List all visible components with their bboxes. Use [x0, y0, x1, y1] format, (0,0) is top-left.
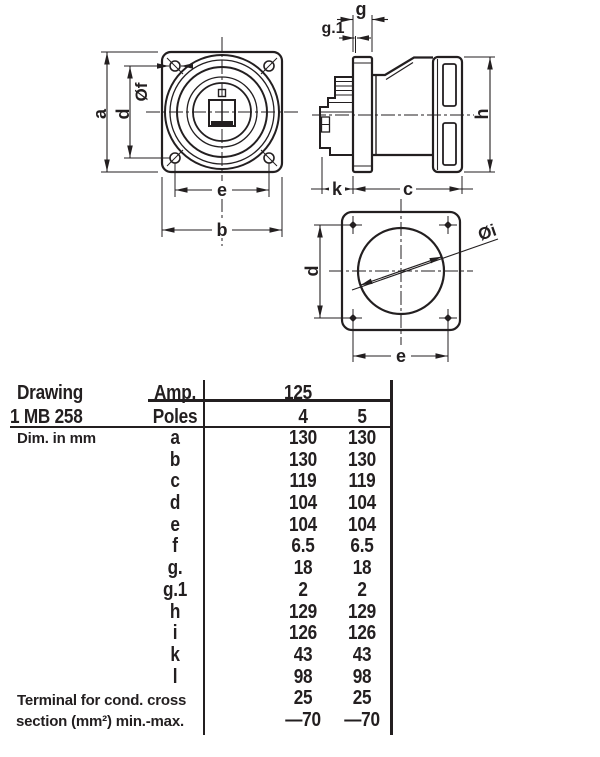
dim-note: Dim. in mm: [17, 431, 96, 447]
body-profile: [372, 58, 433, 76]
row-value: 119: [321, 470, 404, 492]
row-value: 104: [321, 492, 404, 514]
side-dim-h-label: h: [472, 109, 492, 120]
row-key: d: [148, 492, 201, 514]
row-value: 43: [321, 644, 404, 666]
row-value: 130: [321, 427, 404, 449]
row-value: 2: [321, 579, 404, 601]
poles-label: Poles: [148, 406, 201, 428]
row-key: i: [148, 622, 201, 644]
row-key: k: [148, 644, 201, 666]
drawing-number: 1 MB 258: [10, 406, 83, 428]
rear-dim-e-label: e: [396, 346, 406, 366]
drawing-label: Drawing: [17, 382, 83, 404]
row-value: 6.5: [321, 535, 404, 557]
side-view: [311, 15, 495, 194]
row-key: g.1: [148, 579, 201, 601]
datasheet-page: { "colors": {"ink": "#231f20", "backgrou…: [0, 0, 600, 757]
row-value: 129: [321, 601, 404, 623]
amp-value: 125: [217, 382, 379, 404]
rear-dim-d-label: d: [302, 266, 322, 277]
terminal-max-value: —70: [321, 709, 404, 731]
row-value: 126: [321, 622, 404, 644]
front-view: [101, 37, 298, 246]
terminal-label-line2: section (mm²) min.-max.: [16, 714, 184, 730]
row-key: a: [148, 427, 201, 449]
rear-dim-i-label: Øi: [476, 221, 499, 245]
row-key: f: [148, 535, 201, 557]
table-vertical-rule-left: [203, 380, 206, 735]
front-dim-e-label: e: [217, 180, 227, 200]
front-dim-d-label: d: [113, 109, 133, 120]
side-dim-g-label: g: [356, 0, 367, 19]
rear-view: [314, 199, 498, 362]
technical-drawing: a d Øf e b g g.1 h k c d e Øi: [0, 0, 600, 378]
side-dim-k-label: k: [332, 179, 343, 199]
side-dim-c-label: c: [403, 179, 413, 199]
front-dim-a-label: a: [90, 108, 110, 119]
row-value: 104: [321, 514, 404, 536]
row-key: b: [148, 449, 201, 471]
amp-label: Amp.: [148, 382, 201, 404]
row-key: e: [148, 514, 201, 536]
side-dim-g1-label: g.1: [321, 20, 344, 37]
row-value: 130: [321, 449, 404, 471]
row-key: l: [148, 666, 201, 688]
front-dim-b-label: b: [217, 220, 228, 240]
terminal-label-line1: Terminal for cond. cross: [17, 693, 186, 709]
terminal-min-value: 25: [321, 687, 404, 709]
front-dim-f-label: Øf: [132, 82, 151, 101]
terminal-block-profile: [320, 77, 353, 155]
poles-value-5: 5: [321, 406, 404, 428]
row-value: 98: [321, 666, 404, 688]
row-key: c: [148, 470, 201, 492]
row-key: h: [148, 601, 201, 623]
row-key: g.: [148, 557, 201, 579]
row-value: 18: [321, 557, 404, 579]
